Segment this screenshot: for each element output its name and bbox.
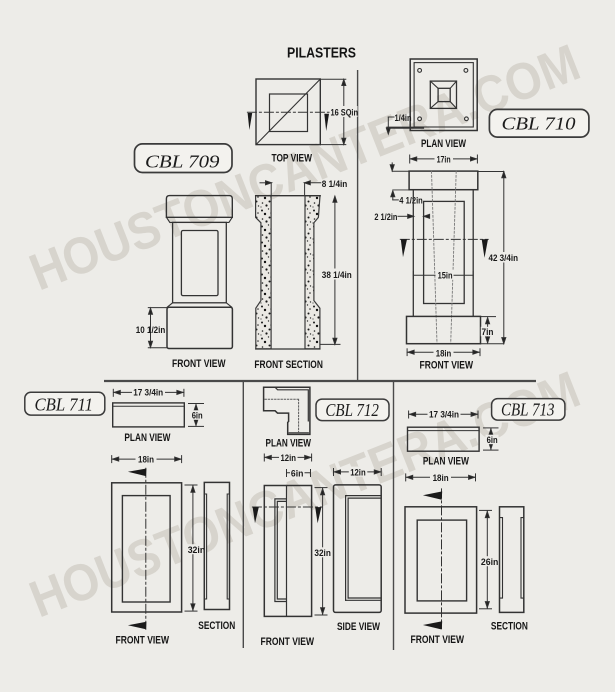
svg-text:PLAN VIEW: PLAN VIEW — [423, 456, 469, 468]
svg-text:18in: 18in — [138, 455, 154, 465]
svg-text:42 3/4in: 42 3/4in — [489, 253, 519, 263]
svg-text:FRONT VIEW: FRONT VIEW — [411, 634, 465, 646]
svg-text:38 1/4in: 38 1/4in — [322, 270, 352, 280]
svg-text:1/4in: 1/4in — [395, 113, 412, 123]
svg-text:CBL 710: CBL 710 — [502, 113, 576, 133]
svg-text:18in: 18in — [433, 473, 449, 483]
svg-text:PLAN VIEW: PLAN VIEW — [124, 432, 170, 444]
svg-text:CBL 713: CBL 713 — [501, 400, 555, 420]
svg-text:FRONT VIEW: FRONT VIEW — [116, 635, 170, 647]
svg-text:PLAN VIEW: PLAN VIEW — [266, 437, 312, 449]
svg-text:12in: 12in — [350, 467, 366, 477]
svg-text:TOP VIEW: TOP VIEW — [272, 152, 313, 164]
svg-text:7in: 7in — [482, 327, 494, 337]
svg-text:18in: 18in — [436, 348, 452, 358]
svg-text:CBL 711: CBL 711 — [35, 395, 94, 415]
svg-text:6in: 6in — [487, 435, 498, 445]
svg-text:10 1/2in: 10 1/2in — [136, 325, 166, 335]
svg-text:8 1/4in: 8 1/4in — [322, 179, 348, 189]
svg-text:4 1/2in: 4 1/2in — [399, 196, 423, 206]
svg-text:6in: 6in — [291, 469, 304, 479]
svg-text:PLAN VIEW: PLAN VIEW — [421, 138, 466, 150]
svg-text:SECTION: SECTION — [198, 620, 235, 632]
svg-text:17 3/4in: 17 3/4in — [429, 410, 459, 420]
svg-text:SIDE VIEW: SIDE VIEW — [337, 621, 380, 633]
svg-text:FRONT VIEW: FRONT VIEW — [420, 360, 474, 372]
svg-text:17in: 17in — [437, 154, 451, 164]
svg-text:32in: 32in — [314, 548, 331, 558]
svg-text:SECTION: SECTION — [491, 621, 528, 633]
svg-text:CBL 712: CBL 712 — [325, 400, 379, 420]
svg-text:6in: 6in — [192, 411, 203, 421]
svg-text:16 SQin: 16 SQin — [331, 107, 359, 117]
svg-text:CBL 709: CBL 709 — [145, 152, 220, 172]
svg-text:2 1/2in: 2 1/2in — [374, 212, 397, 222]
svg-text:17 3/4in: 17 3/4in — [133, 388, 163, 398]
svg-text:32in: 32in — [188, 545, 206, 555]
svg-text:12in: 12in — [281, 453, 297, 463]
svg-text:FRONT VIEW: FRONT VIEW — [261, 636, 315, 648]
svg-text:FRONT VIEW: FRONT VIEW — [172, 358, 226, 370]
svg-text:15in: 15in — [438, 271, 453, 281]
svg-text:PILASTERS: PILASTERS — [287, 45, 356, 62]
svg-text:26in: 26in — [481, 557, 499, 567]
svg-text:FRONT SECTION: FRONT SECTION — [254, 359, 323, 371]
